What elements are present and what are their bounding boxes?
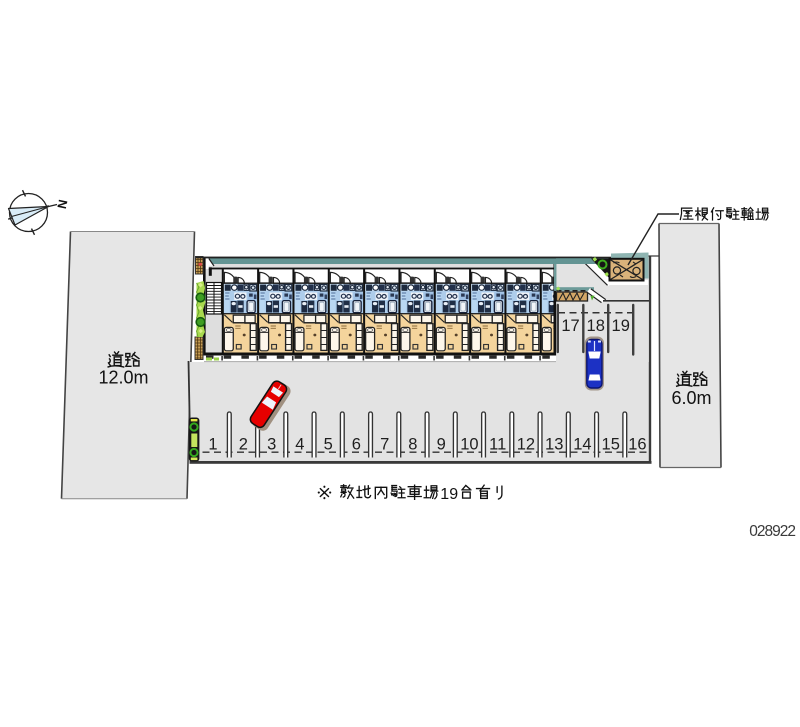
svg-text:1: 1 <box>208 436 217 454</box>
svg-text:11: 11 <box>489 436 506 454</box>
svg-text:2: 2 <box>239 436 248 454</box>
svg-text:19: 19 <box>612 317 630 335</box>
svg-text:19: 19 <box>440 486 458 503</box>
svg-text:6: 6 <box>352 436 361 454</box>
svg-text:028922: 028922 <box>749 523 795 540</box>
svg-text:14: 14 <box>573 436 591 454</box>
svg-text:12: 12 <box>517 436 535 454</box>
svg-text:13: 13 <box>545 436 563 454</box>
svg-text:18: 18 <box>587 317 605 335</box>
svg-text:15: 15 <box>602 436 620 454</box>
svg-text:16: 16 <box>628 436 646 454</box>
svg-text:17: 17 <box>561 317 579 335</box>
svg-text:4: 4 <box>295 436 304 454</box>
svg-text:5: 5 <box>324 436 333 454</box>
svg-text:9: 9 <box>437 436 446 454</box>
svg-text:7: 7 <box>380 436 389 454</box>
svg-text:8: 8 <box>408 436 417 454</box>
svg-text:3: 3 <box>267 436 276 454</box>
svg-text:12.0m: 12.0m <box>98 368 148 388</box>
svg-text:10: 10 <box>460 436 478 454</box>
svg-text:6.0m: 6.0m <box>671 388 711 408</box>
